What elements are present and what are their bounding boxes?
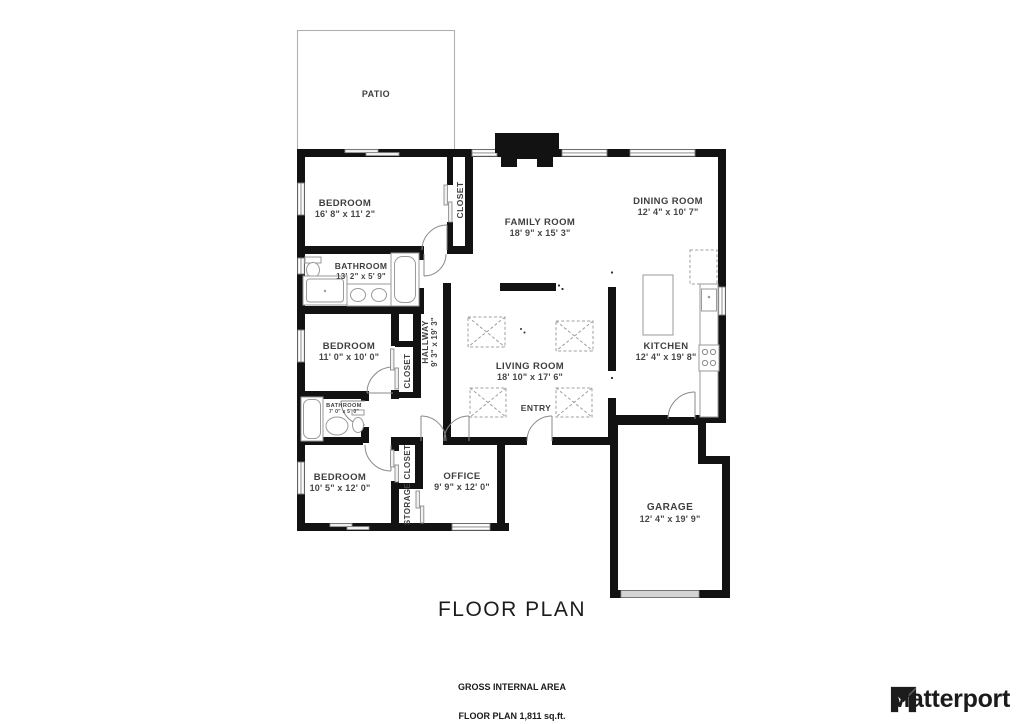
- room-label-closet1: CLOSET: [455, 181, 465, 218]
- gross-internal-area-label: GROSS INTERNAL AREA: [0, 683, 1024, 693]
- skylight: [468, 317, 505, 347]
- kitchen-island: [643, 275, 673, 335]
- room-label-closet3: CLOSET: [403, 445, 412, 480]
- bathtub-bathroom2: [301, 397, 323, 441]
- room-dims-bathroom1: 13' 2" x 5' 9": [336, 272, 386, 281]
- room-dims-bedroom2: 11' 0" x 10' 0": [319, 352, 379, 362]
- window-top-family: [472, 150, 497, 157]
- room-label-bathroom1: BATHROOM: [335, 261, 388, 271]
- door-bedroom1: [422, 225, 447, 250]
- room-label-family: FAMILY ROOM: [505, 217, 575, 228]
- sliding-door-closet1: [444, 185, 452, 222]
- room-dims-bedroom1: 16' 8" x 11' 2": [315, 209, 375, 219]
- room-label-dining: DINING ROOM: [633, 196, 703, 207]
- bathtub-bathroom1: [391, 253, 419, 306]
- door-bedroom2: [367, 367, 393, 393]
- room-label-bedroom3: BEDROOM: [314, 472, 366, 483]
- sliding-door-closet3: [391, 450, 399, 482]
- stove: [699, 345, 719, 371]
- skylight: [556, 321, 593, 351]
- toilet-bathroom1: [305, 257, 321, 278]
- window-kitchen-east: [719, 287, 726, 315]
- room-label-living: LIVING ROOM: [496, 361, 564, 372]
- room-label-storage: STORAGE: [403, 483, 412, 525]
- slider-bedroom3: [330, 524, 352, 527]
- door-entry: [527, 416, 552, 441]
- vanity-sinks-bathroom1: [347, 284, 391, 306]
- room-label-office: OFFICE: [443, 471, 480, 482]
- window-top-kitchen: [562, 150, 607, 157]
- sink-bathroom2: [326, 417, 348, 435]
- window-bedroom2: [298, 330, 305, 362]
- room-label-bedroom1: BEDROOM: [319, 198, 371, 209]
- room-label-kitchen: KITCHEN: [643, 341, 688, 352]
- kitchen-sink: [702, 289, 717, 311]
- matterport-logo: Matterport: [889, 685, 1010, 714]
- room-dims-family: 18' 9" x 15' 3": [510, 228, 571, 238]
- room-label-entry: ENTRY: [521, 403, 552, 413]
- plan-title: FLOOR PLAN: [0, 598, 1024, 622]
- window-bedroom3: [298, 462, 305, 494]
- skylight: [556, 388, 592, 417]
- door-hallway: [424, 254, 446, 276]
- door-office-left: [421, 416, 446, 441]
- room-label-closet2: CLOSET: [403, 354, 412, 389]
- floor-plan-page: PATIO BEDROOM 16' 8" x 11' 2" CLOSET FAM…: [0, 0, 1024, 724]
- window-bedroom1: [298, 183, 305, 215]
- matterport-mark-icon: [889, 685, 918, 714]
- room-label-patio: PATIO: [362, 89, 390, 99]
- window-top-dining: [630, 150, 695, 157]
- room-label-hallway: HALLWAY: [420, 320, 430, 364]
- window-office: [452, 524, 490, 531]
- garage-door: [621, 591, 699, 598]
- floor-plan-area: FLOOR PLAN 1,811 sq.ft.: [0, 712, 1024, 722]
- room-dims-hallway: 9' 3" x 19' 3": [430, 317, 439, 367]
- sliding-door-storage: [416, 491, 424, 523]
- room-label-bedroom2: BEDROOM: [323, 341, 375, 352]
- room-dims-living: 18' 10" x 17' 6": [497, 372, 563, 382]
- door-bedroom3: [365, 445, 391, 471]
- room-label-garage: GARAGE: [647, 502, 693, 513]
- fireplace: [495, 133, 559, 167]
- window-bathroom1: [298, 258, 305, 274]
- refrigerator: [690, 250, 717, 284]
- room-dims-bathroom2: 7' 0" x 5' 0": [329, 409, 360, 415]
- room-dims-office: 9' 9" x 12' 0": [434, 482, 490, 492]
- room-dims-garage: 12' 4" x 19' 9": [640, 514, 701, 524]
- room-dims-dining: 12' 4" x 10' 7": [638, 207, 699, 217]
- room-dims-kitchen: 12' 4" x 19' 8": [636, 352, 697, 362]
- door-kitchen-garage: [668, 392, 695, 419]
- skylight: [470, 388, 506, 417]
- sliding-door-closet2: [391, 349, 399, 389]
- area-summary: GROSS INTERNAL AREA FLOOR PLAN 1,811 sq.…: [0, 663, 1024, 724]
- room-dims-bedroom3: 10' 5" x 12' 0": [310, 483, 371, 493]
